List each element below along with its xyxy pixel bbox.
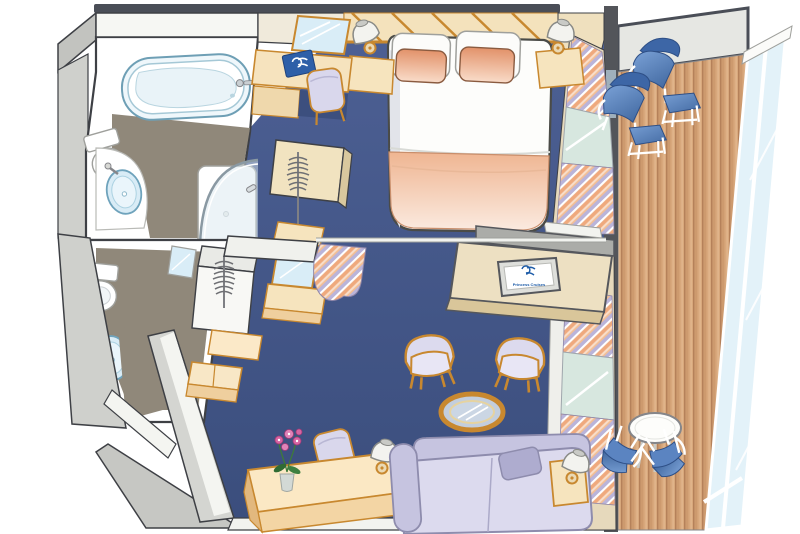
nightstand-left bbox=[348, 56, 394, 94]
tv-logo-text: Princess Cruises bbox=[513, 282, 546, 287]
suite-floorplan-stage: Isometric floor plan illustration of a c… bbox=[0, 0, 800, 534]
queen-bed bbox=[388, 31, 552, 232]
tub-faucet bbox=[236, 79, 243, 86]
sofa-armrest bbox=[389, 443, 422, 533]
closet-upper bbox=[270, 140, 344, 202]
ottoman-bench bbox=[186, 362, 242, 402]
peach-pillow-left bbox=[395, 49, 447, 84]
curved-shower bbox=[198, 160, 258, 246]
peach-pillow-right bbox=[459, 47, 515, 84]
window-glass-bedroom bbox=[562, 107, 613, 168]
suite-floorplan-illustration: Isometric floor plan illustration of a c… bbox=[0, 0, 800, 534]
flat-tv: Princess Cruises bbox=[498, 258, 560, 296]
closet-drawer-lower bbox=[208, 330, 262, 360]
window-glass-sitting bbox=[561, 352, 614, 420]
curtain-bedroom-bottom bbox=[556, 163, 614, 234]
bathtub bbox=[120, 52, 255, 121]
bed-foot-throw bbox=[389, 152, 549, 230]
